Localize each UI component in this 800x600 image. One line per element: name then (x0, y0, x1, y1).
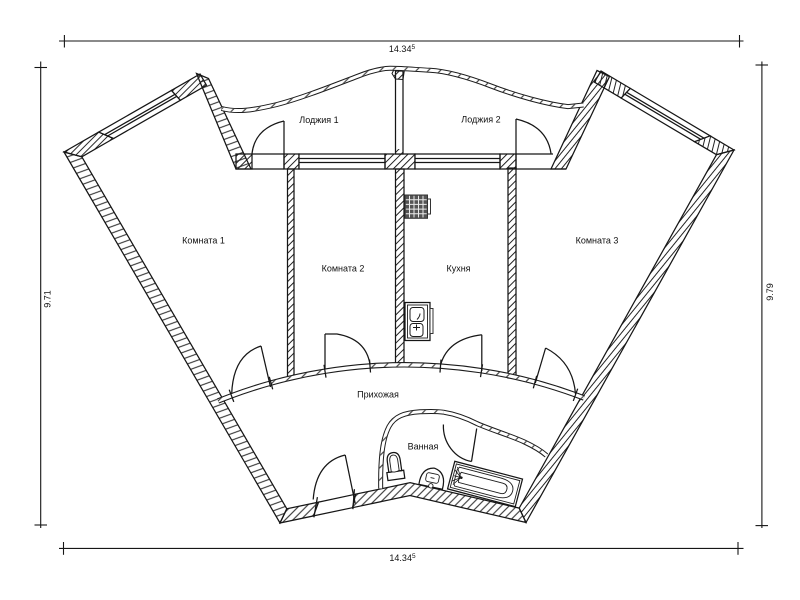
svg-text:9.71: 9.71 (43, 290, 53, 308)
svg-text:Лоджия 2: Лоджия 2 (461, 115, 500, 125)
svg-text:Лоджия 1: Лоджия 1 (299, 115, 338, 125)
svg-text:Прихожая: Прихожая (357, 390, 399, 400)
svg-text:Комната 3: Комната 3 (576, 236, 619, 246)
svg-text:Комната 1: Комната 1 (182, 236, 225, 246)
svg-text:Ванная: Ванная (408, 442, 439, 452)
svg-text:Комната 2: Комната 2 (322, 264, 365, 274)
svg-text:Кухня: Кухня (446, 264, 470, 274)
svg-text:9.79: 9.79 (765, 283, 775, 301)
